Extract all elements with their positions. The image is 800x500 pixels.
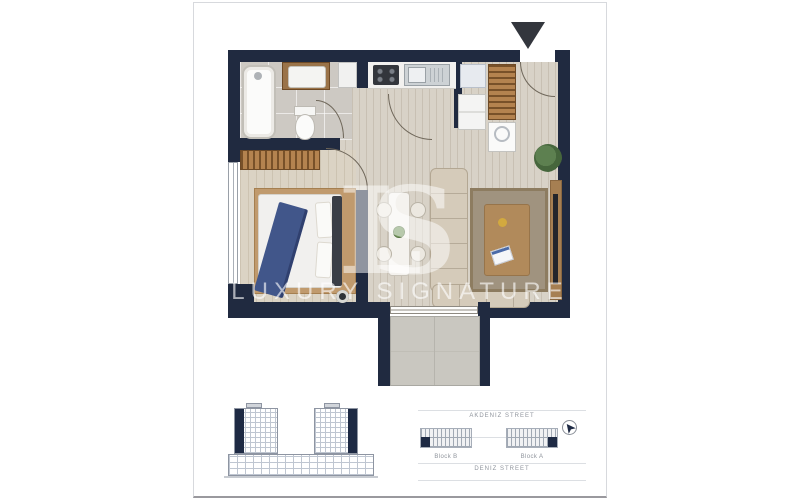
- tower-right-accent: [348, 409, 357, 453]
- wall-top-left: [228, 50, 520, 62]
- site-plan: AKDENIZ STREET Block B Block A DENIZ STR…: [408, 403, 596, 485]
- stove: [373, 65, 399, 85]
- podium-base: [224, 476, 378, 478]
- street-line: [418, 463, 586, 464]
- fridge: [458, 94, 486, 130]
- street-line: [418, 410, 586, 411]
- balcony: [378, 302, 490, 388]
- wardrobe: [240, 150, 320, 170]
- watermark-text: LUXURY SIGNATURE: [193, 278, 607, 306]
- balcony-wall-left: [378, 302, 390, 386]
- wall-kitchen-divider: [357, 62, 368, 88]
- street-label-bottom: DENIZ STREET: [408, 466, 596, 472]
- shower-head-icon: [254, 72, 262, 80]
- block-a-label: Block A: [506, 454, 558, 460]
- pillow: [315, 241, 333, 278]
- tv-icon: [553, 194, 558, 284]
- balcony-floor: [390, 316, 480, 386]
- building-elevation: [228, 400, 378, 482]
- wall-left-upper: [228, 50, 240, 162]
- block-connector-line: [472, 437, 506, 438]
- tower-left-accent: [235, 409, 244, 453]
- block-a-unit-highlight: [548, 437, 557, 447]
- compass-needle-icon: [563, 421, 576, 434]
- appliance-niche: [460, 64, 486, 88]
- bathroom-door-panel: [338, 62, 357, 88]
- kitchen-sink-drainboard: [430, 68, 446, 82]
- block-b-label: Block B: [420, 454, 472, 460]
- plant-icon: [534, 144, 562, 172]
- street-label-top: AKDENIZ STREET: [408, 413, 596, 419]
- wall-bathroom-south: [240, 138, 340, 150]
- bedroom-window: [228, 162, 238, 284]
- block-b-unit-highlight: [421, 437, 430, 447]
- kitchen-sink-basin: [408, 67, 426, 83]
- north-arrow-icon: [511, 22, 545, 49]
- floorplan-page: LS LUXURY SIGNATURE AKDENIZ STREET Block…: [0, 0, 800, 500]
- toilet-bowl: [295, 114, 315, 140]
- street-line: [418, 480, 586, 481]
- washing-machine-door-icon: [494, 126, 510, 142]
- podium: [228, 454, 374, 476]
- vanity-basin: [288, 66, 326, 88]
- shoe-closet: [488, 64, 516, 120]
- compass-icon: [562, 420, 577, 435]
- pillow: [315, 201, 333, 238]
